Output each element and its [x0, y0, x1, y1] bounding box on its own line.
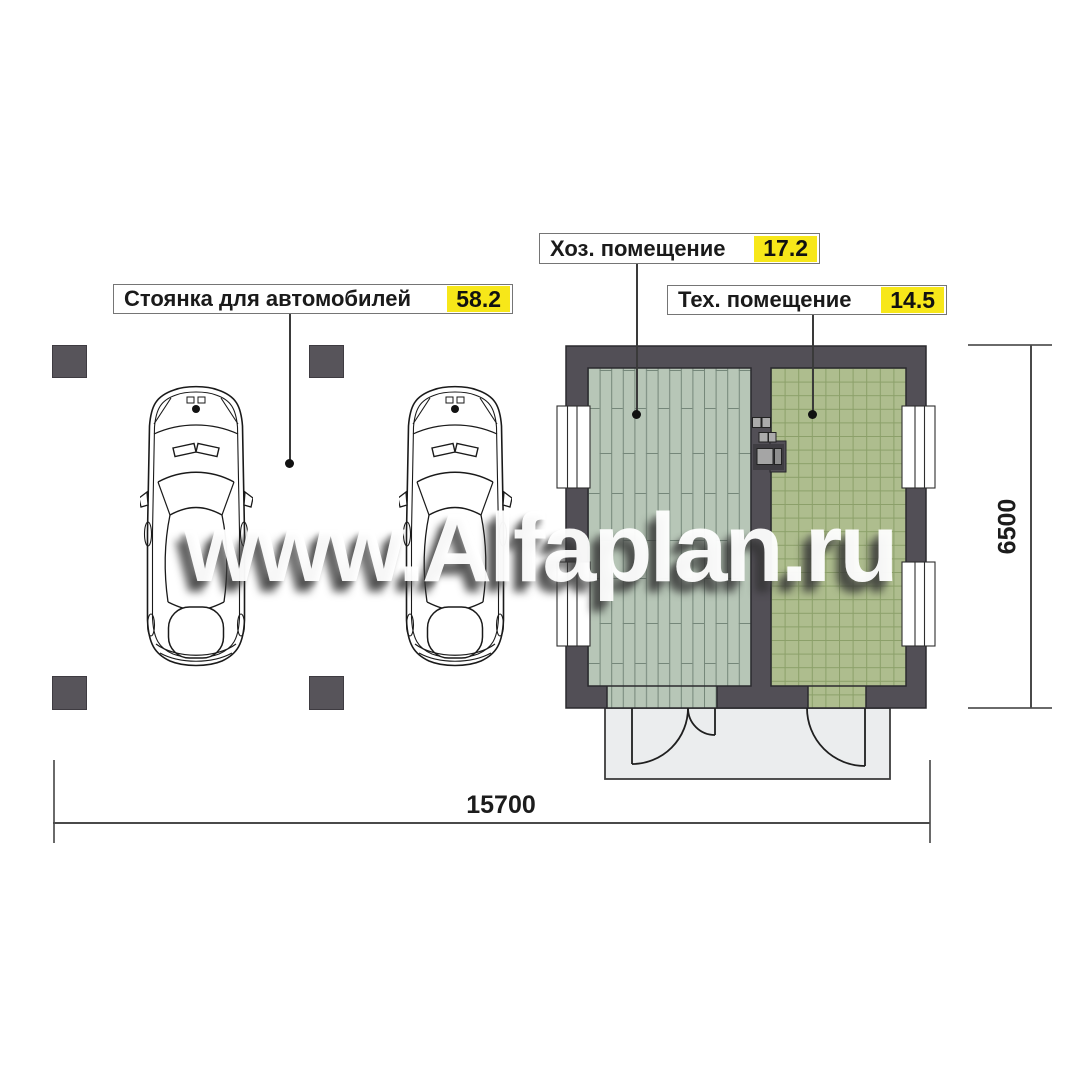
window-left-2 — [557, 562, 590, 646]
carport-column-bottom-left — [52, 676, 87, 710]
label-technical-area-badge: 14.5 — [881, 287, 944, 313]
label-household-area-badge: 17.2 — [754, 236, 817, 262]
dim-extension-bottom-left — [53, 760, 55, 843]
leader-line-technical — [812, 315, 814, 414]
dim-extension-bottom-right — [929, 760, 931, 843]
leader-line-parking — [289, 314, 291, 463]
dim-line-depth — [1030, 345, 1032, 708]
leader-dot-household — [632, 410, 641, 419]
garage-building-plan — [540, 330, 960, 800]
leader-dot-parking — [285, 459, 294, 468]
label-parking-area-badge: 58.2 — [447, 286, 510, 312]
carport-column-top-right — [309, 345, 344, 378]
car-top-view-icon-left — [140, 382, 253, 672]
label-household-text: Хоз. помещение — [540, 236, 725, 262]
window-right-2 — [902, 562, 935, 646]
label-household: Хоз. помещение 17.2 — [539, 233, 820, 264]
technical-room-tile-floor — [771, 368, 906, 708]
floor-plan-page: Стоянка для автомобилей 58.2 Хоз. помеще… — [0, 0, 1080, 1080]
car-top-view-icon-right — [399, 382, 512, 672]
dim-text-width: 15700 — [421, 791, 581, 820]
dim-text-depth: 6500 — [994, 447, 1023, 607]
window-left-1 — [557, 406, 590, 488]
carport-column-bottom-right — [309, 676, 344, 710]
dim-extension-right-top — [968, 344, 1052, 346]
label-parking-text: Стоянка для автомобилей — [114, 286, 411, 312]
porch-slab — [605, 708, 890, 779]
label-technical: Тех. помещение 14.5 — [667, 285, 947, 315]
dim-line-width — [53, 822, 930, 824]
label-technical-text: Тех. помещение — [668, 287, 852, 313]
leader-line-household — [636, 264, 638, 414]
household-room-plank-floor — [588, 368, 751, 708]
carport-column-top-left — [52, 345, 87, 378]
leader-dot-technical — [808, 410, 817, 419]
dim-extension-right-bottom — [968, 707, 1052, 709]
window-right-1 — [902, 406, 935, 488]
label-parking: Стоянка для автомобилей 58.2 — [113, 284, 513, 314]
